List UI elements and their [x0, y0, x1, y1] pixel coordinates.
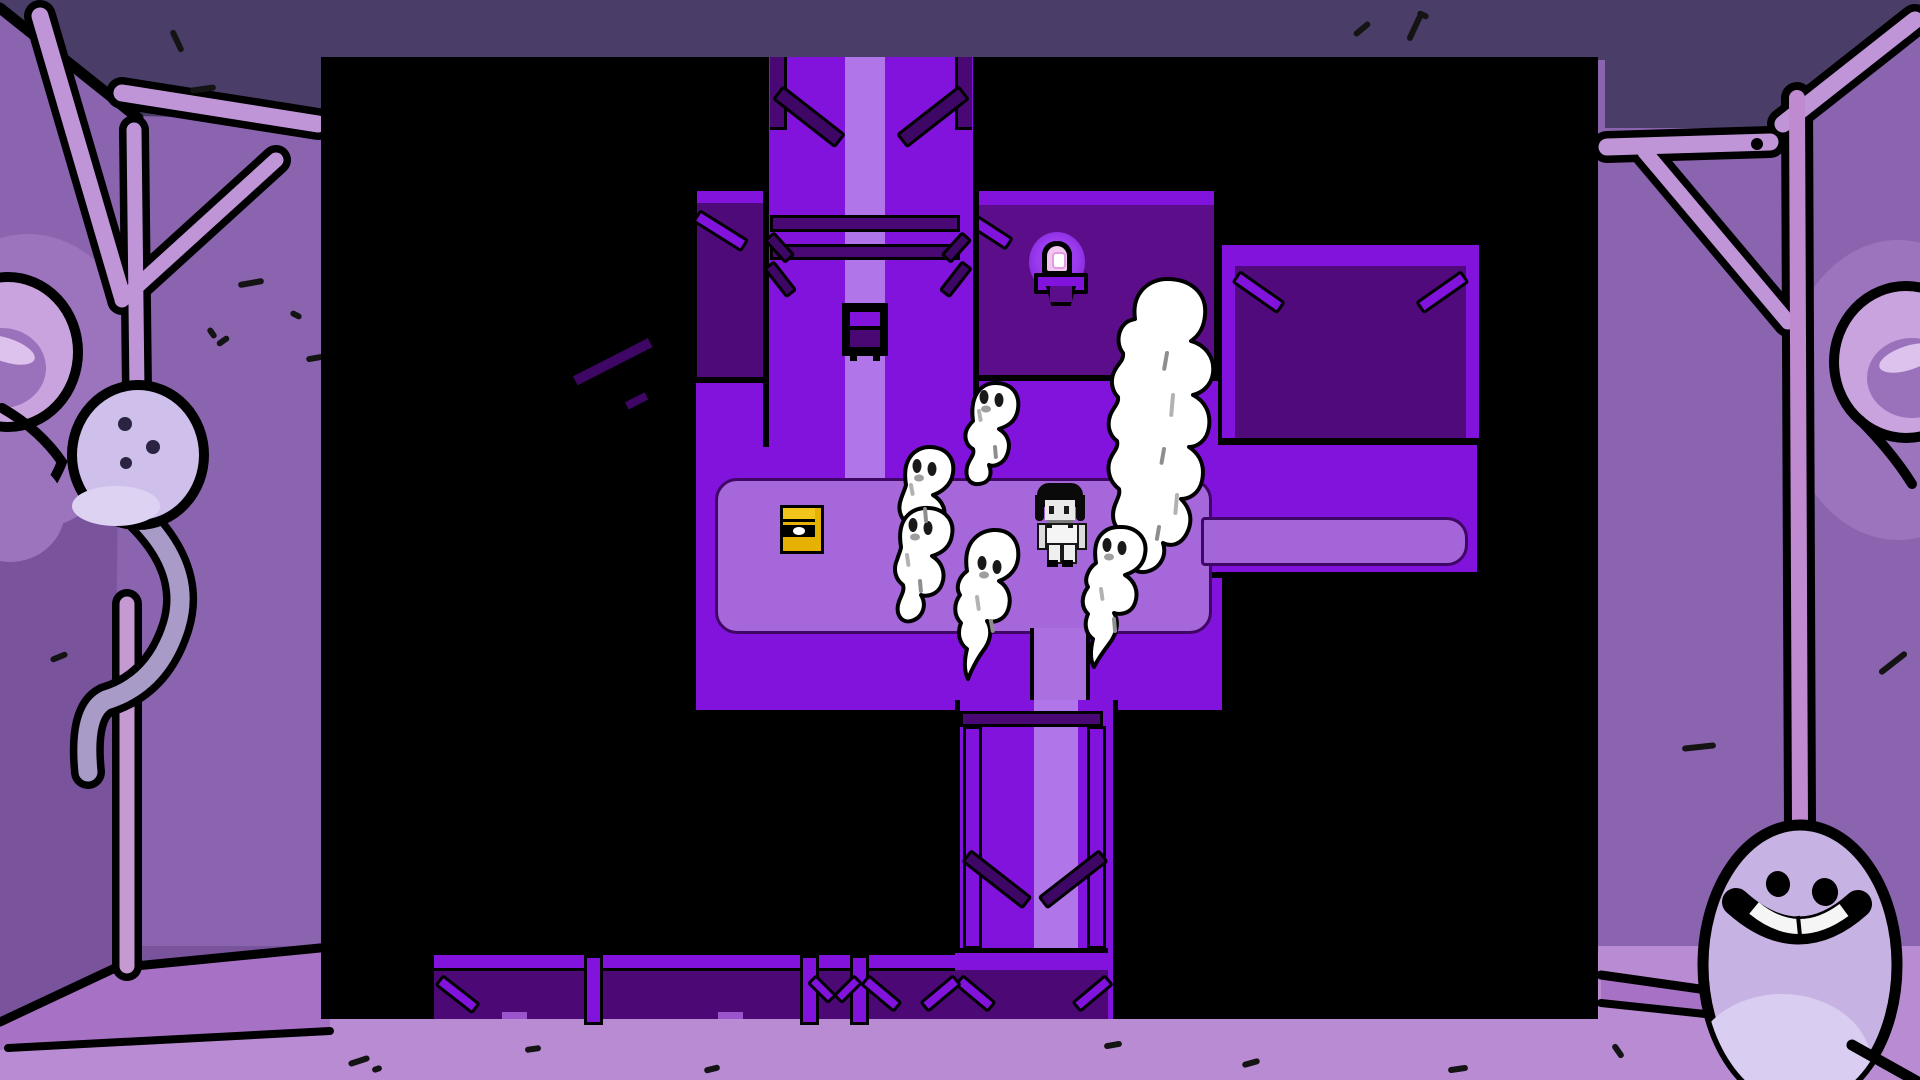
scribble-dash — [348, 1055, 371, 1068]
scribble-dash — [1352, 20, 1371, 37]
ghost-streak — [1162, 449, 1164, 463]
ghost-swarm — [321, 57, 1598, 1019]
ghost-e — [1083, 527, 1146, 667]
game-viewport[interactable] — [321, 57, 1598, 1019]
ghost-streak — [920, 581, 921, 591]
ghost-c — [895, 508, 952, 621]
scribble-dash — [216, 335, 231, 348]
ghost-streak — [1175, 495, 1177, 513]
screenshot-stage — [0, 0, 1920, 1080]
ghost-streak — [977, 597, 979, 609]
ghost-streak — [1114, 619, 1115, 631]
scribble-dash — [1448, 1065, 1469, 1074]
scribble-dash — [1682, 742, 1716, 752]
ghost-streak — [1171, 395, 1173, 415]
scribble-dash — [704, 1064, 721, 1074]
ghost-streak — [907, 555, 908, 565]
scribble-dash — [1242, 1058, 1261, 1069]
ghost-d — [955, 530, 1018, 679]
ghost-a — [965, 383, 1018, 484]
scribble-dash — [1104, 1040, 1123, 1049]
scribble-dash — [525, 1045, 542, 1053]
scribble-dash — [238, 278, 265, 288]
ghost-streak — [1157, 527, 1159, 539]
ghost-streak — [911, 485, 913, 494]
ghost-streak — [991, 621, 993, 631]
scribble-dash — [50, 651, 69, 663]
scribble-dash — [169, 29, 185, 53]
ghost-streak — [979, 411, 981, 420]
scribble-dash — [1878, 650, 1908, 676]
scribble-dash — [206, 326, 218, 339]
ghost-streak — [1164, 353, 1167, 369]
scribble-dash — [371, 1065, 382, 1074]
scribble-dash — [289, 310, 302, 321]
scribble-dash — [190, 84, 217, 94]
ghost-streak — [995, 447, 996, 457]
scribble-dash — [1611, 1043, 1625, 1060]
ghost-streak — [925, 509, 926, 521]
ghost-streak — [1101, 589, 1102, 599]
